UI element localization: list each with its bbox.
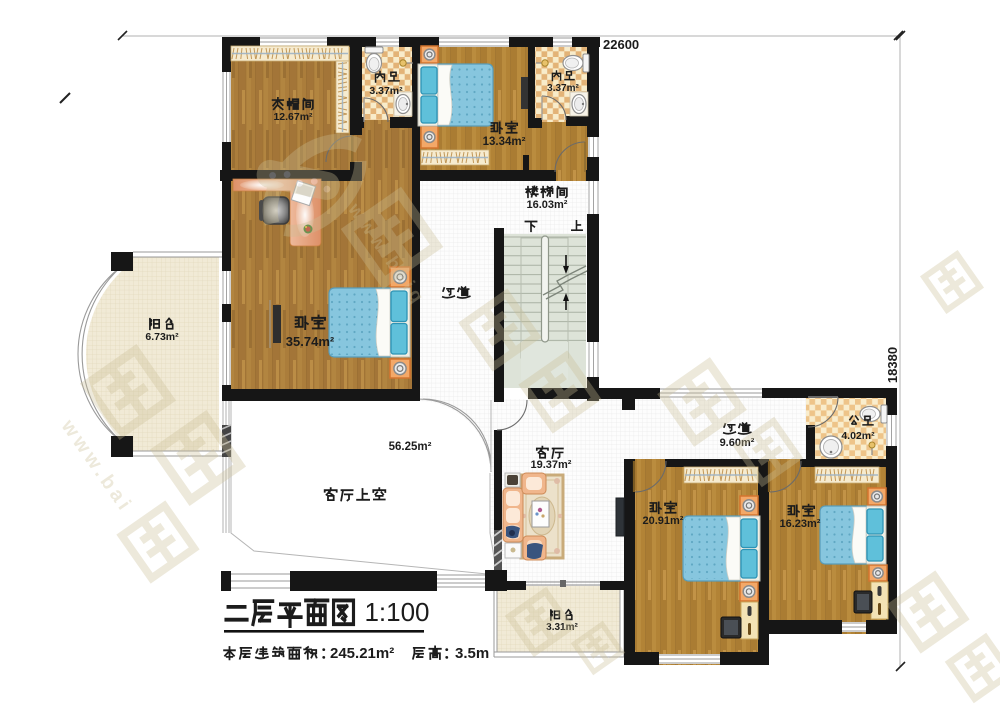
svg-text:3.37m²: 3.37m² bbox=[369, 85, 403, 97]
svg-text:6.73m²: 6.73m² bbox=[145, 331, 179, 343]
svg-text:18380: 18380 bbox=[885, 347, 900, 383]
svg-text:1:100: 1:100 bbox=[364, 597, 429, 627]
svg-text:19.37m²: 19.37m² bbox=[531, 459, 572, 471]
svg-text:3.37m²: 3.37m² bbox=[547, 83, 579, 94]
svg-text:13.34m²: 13.34m² bbox=[483, 136, 526, 148]
svg-text:56.25m²: 56.25m² bbox=[389, 441, 432, 453]
svg-text:20.91m²: 20.91m² bbox=[643, 515, 684, 527]
svg-text:3.5m: 3.5m bbox=[455, 645, 489, 662]
svg-text:12.67m²: 12.67m² bbox=[273, 111, 313, 123]
svg-text:35.74m²: 35.74m² bbox=[286, 334, 335, 349]
svg-text:16.03m²: 16.03m² bbox=[527, 199, 568, 211]
svg-text:245.21m²: 245.21m² bbox=[330, 645, 394, 662]
svg-text:4.02m²: 4.02m² bbox=[841, 430, 875, 442]
svg-text:16.23m²: 16.23m² bbox=[780, 518, 821, 530]
svg-text:22600: 22600 bbox=[603, 37, 639, 52]
